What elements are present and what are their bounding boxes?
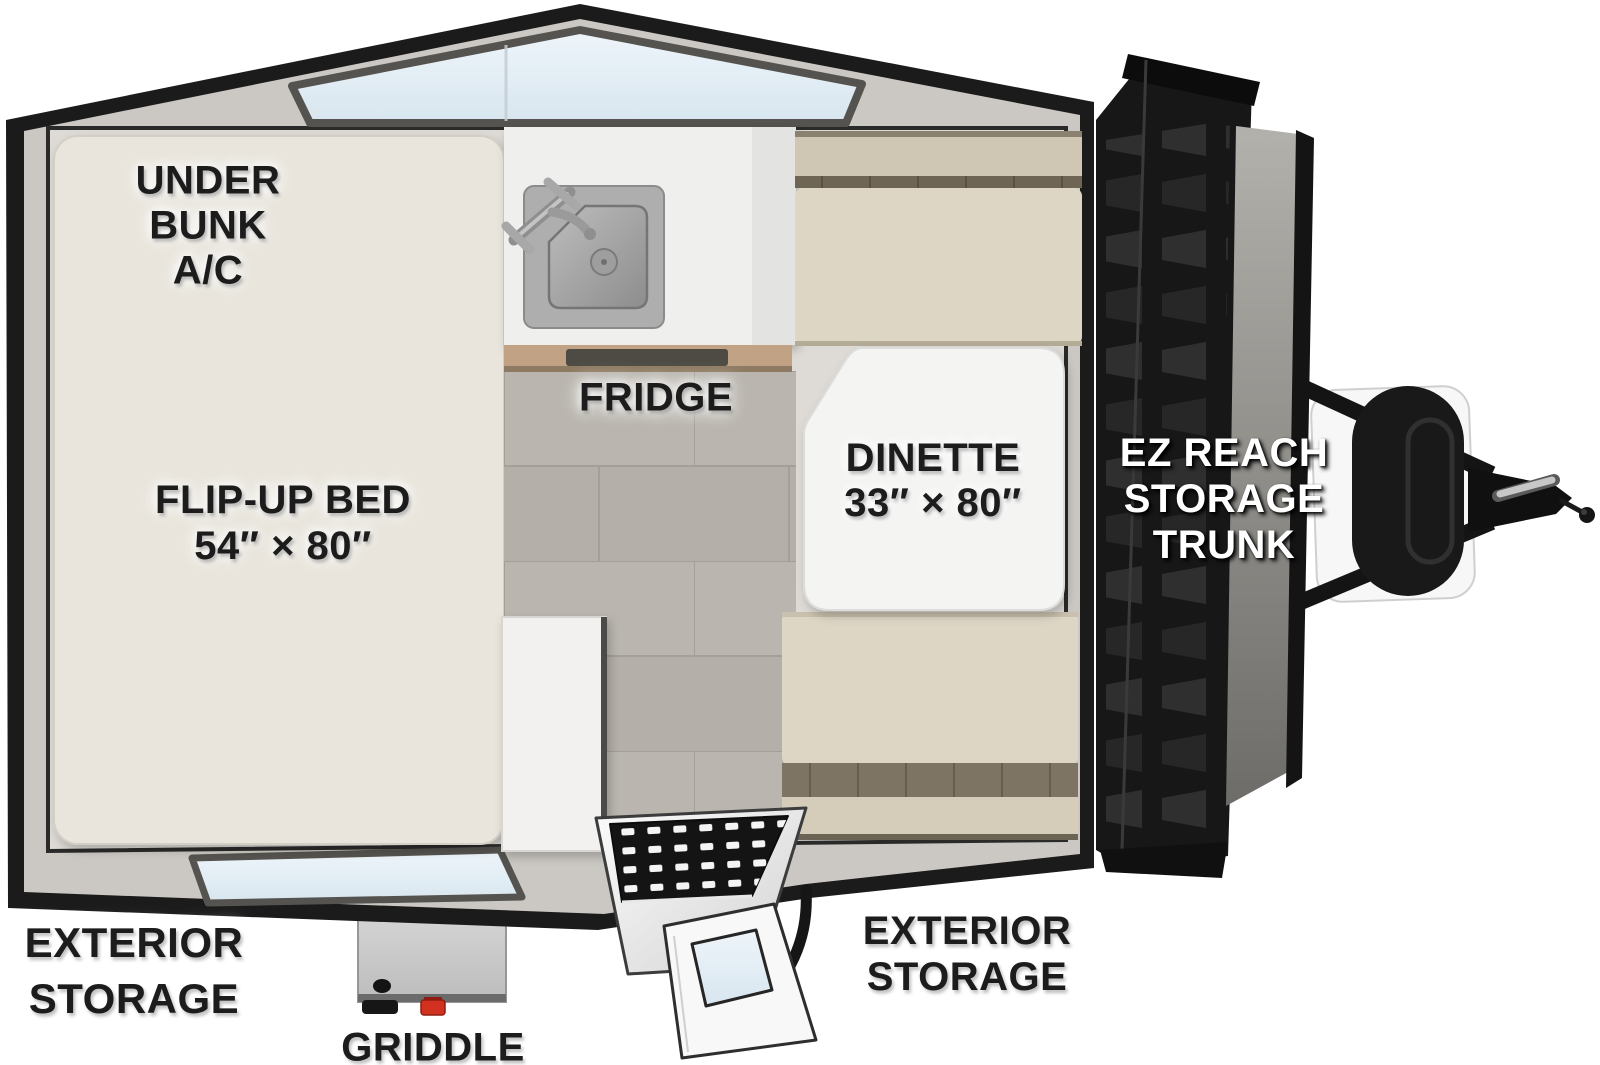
tongue-hitch <box>1296 384 1595 604</box>
rear-bench-seam <box>782 763 1078 799</box>
griddle-knob <box>373 979 391 993</box>
front-bench-seat <box>795 188 1082 345</box>
label-flip-up-bed: FLIP-UP BED 54″ × 80″ <box>155 477 411 569</box>
hitch-pin-highlight <box>1581 509 1587 515</box>
rear-bench-base <box>782 834 1078 840</box>
rear-wall-window <box>192 850 522 903</box>
rear-bench-seat <box>782 612 1078 765</box>
label-exterior-storage-left: EXTERIOR STORAGE <box>25 915 244 1027</box>
counter-side-shade <box>752 127 796 345</box>
dinette-front-bench <box>795 131 1082 346</box>
label-dinette: DINETTE 33″ × 80″ <box>844 436 1021 526</box>
kitchen-sink <box>506 182 664 328</box>
front-bench-seam <box>795 176 1082 188</box>
label-griddle: GRIDDLE <box>341 1026 525 1065</box>
fridge-face-shadow <box>504 366 792 372</box>
front-bench-backrest <box>795 131 1082 181</box>
rear-bench-backrest <box>782 797 1078 838</box>
label-exterior-storage-right: EXTERIOR STORAGE <box>863 908 1071 1000</box>
griddle-valve <box>421 1000 445 1015</box>
sink-drain-hole <box>601 259 607 265</box>
rear-bench-seat-edge <box>782 612 1078 617</box>
floorplan-image: UNDER BUNK A/C FLIP-UP BED 54″ × 80″ FRI… <box>0 0 1600 1065</box>
label-fridge: FRIDGE <box>579 376 733 421</box>
label-under-bunk-ac: UNDER BUNK A/C <box>136 159 281 294</box>
fridge-vent <box>566 349 728 366</box>
label-ez-reach-trunk: EZ REACH STORAGE TRUNK <box>1120 430 1328 568</box>
griddle-foot <box>362 1000 398 1014</box>
dinette-rear-bench <box>782 612 1078 840</box>
divider-cabinet <box>502 617 607 851</box>
front-bench-top-edge <box>795 131 1082 137</box>
hitch-pin-ball <box>1579 507 1595 523</box>
entry-area <box>596 808 816 1058</box>
front-bench-seat-edge <box>795 341 1082 346</box>
